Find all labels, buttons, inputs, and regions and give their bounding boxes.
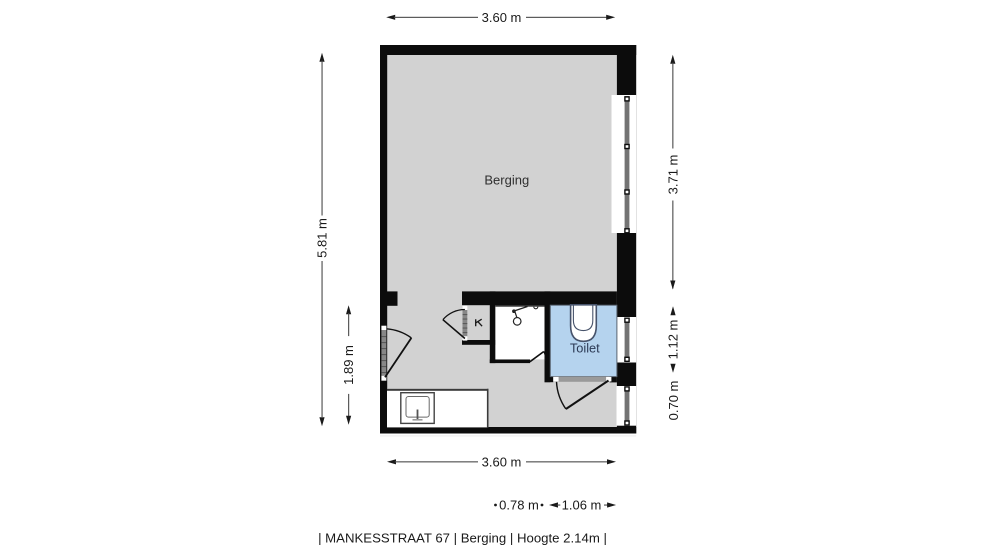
svg-text:Berging: Berging bbox=[484, 172, 529, 187]
svg-text:3.60 m: 3.60 m bbox=[482, 454, 522, 469]
svg-text:0.78 m: 0.78 m bbox=[499, 498, 539, 513]
svg-text:Toilet: Toilet bbox=[570, 341, 600, 356]
svg-text:5.81 m: 5.81 m bbox=[315, 218, 330, 258]
svg-text:1.12 m: 1.12 m bbox=[666, 320, 681, 360]
svg-text:| MANKESSTRAAT 67 | Berging |: | MANKESSTRAAT 67 | Berging | Hoogte 2.1… bbox=[318, 531, 607, 546]
svg-text:0.70 m: 0.70 m bbox=[666, 381, 681, 421]
svg-text:1.89 m: 1.89 m bbox=[341, 345, 356, 385]
svg-text:3.60 m: 3.60 m bbox=[482, 10, 522, 25]
svg-text:3.71 m: 3.71 m bbox=[665, 155, 680, 195]
svg-text:1.06 m: 1.06 m bbox=[562, 498, 602, 513]
